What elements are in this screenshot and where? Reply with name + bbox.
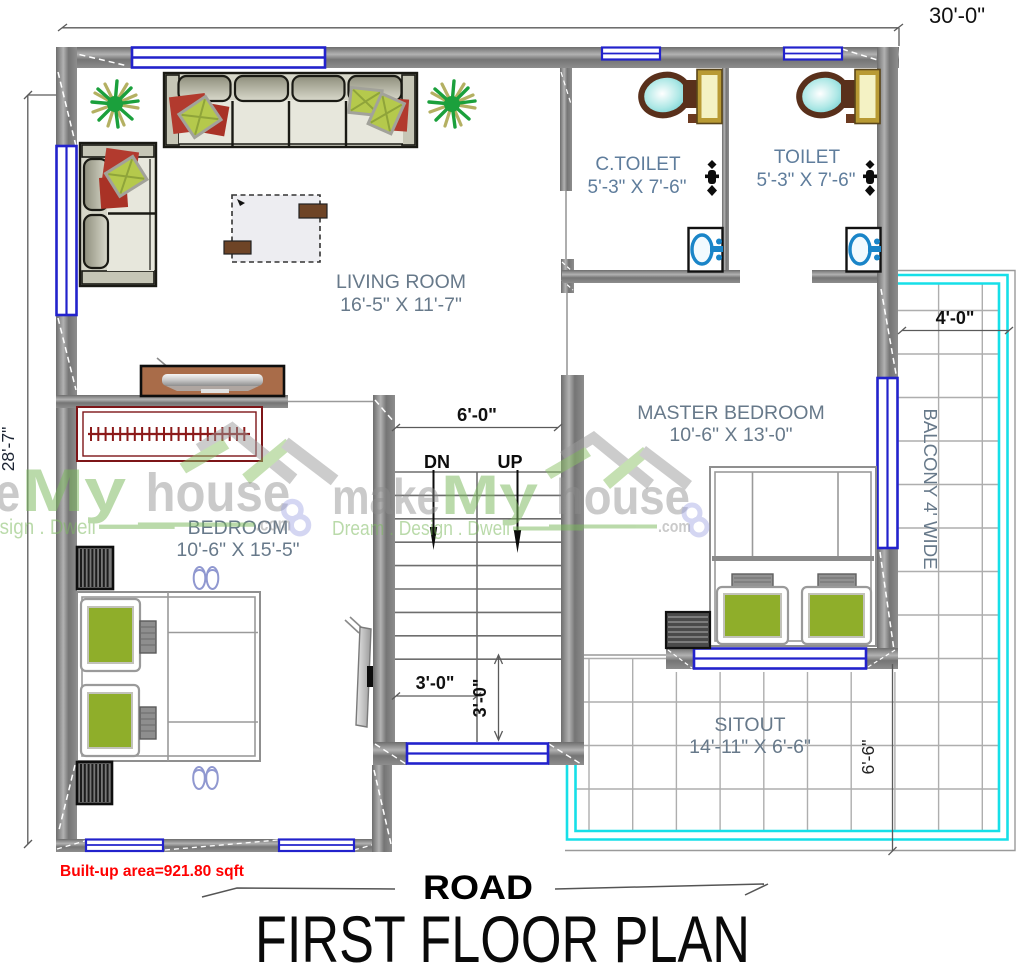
svg-text:SITOUT: SITOUT (714, 714, 785, 736)
svg-text:FIRST FLOOR PLAN: FIRST FLOOR PLAN (255, 902, 750, 970)
svg-text:5'-3" X 7'-6": 5'-3" X 7'-6" (588, 177, 687, 198)
svg-text:10'-6" X 13'-0": 10'-6" X 13'-0" (669, 424, 792, 446)
svg-text:LIVING ROOM: LIVING ROOM (336, 271, 466, 293)
svg-text:14'-11" X 6'-6": 14'-11" X 6'-6" (689, 736, 811, 758)
svg-text:C.TOILET: C.TOILET (595, 154, 681, 175)
svg-text:6'-6": 6'-6" (858, 740, 878, 775)
svg-text:Built-up area=921.80 sqft: Built-up area=921.80 sqft (60, 863, 244, 880)
svg-text:make: make (332, 469, 440, 525)
svg-text:BALCONY 4' WIDE: BALCONY 4' WIDE (920, 409, 940, 570)
svg-text:4'-0": 4'-0" (936, 308, 975, 328)
svg-text:3'-0": 3'-0" (416, 673, 455, 693)
svg-text:30'-0": 30'-0" (929, 3, 985, 28)
svg-text:My: My (441, 463, 538, 526)
svg-text:10'-6" X 15'-5": 10'-6" X 15'-5" (176, 539, 299, 561)
svg-text:Dream . Design . Dwell: Dream . Design . Dwell (332, 518, 510, 540)
svg-text:6'-0": 6'-0" (457, 404, 497, 425)
svg-text:Dream . Design . Dwell: Dream . Design . Dwell (0, 514, 96, 539)
svg-text:16'-5" X 11'-7": 16'-5" X 11'-7" (340, 294, 462, 316)
svg-text:TOILET: TOILET (774, 147, 841, 168)
svg-text:MASTER BEDROOM: MASTER BEDROOM (637, 402, 824, 424)
svg-text:3'-0": 3'-0" (470, 679, 490, 718)
svg-text:5'-3" X 7'-6": 5'-3" X 7'-6" (757, 170, 856, 191)
